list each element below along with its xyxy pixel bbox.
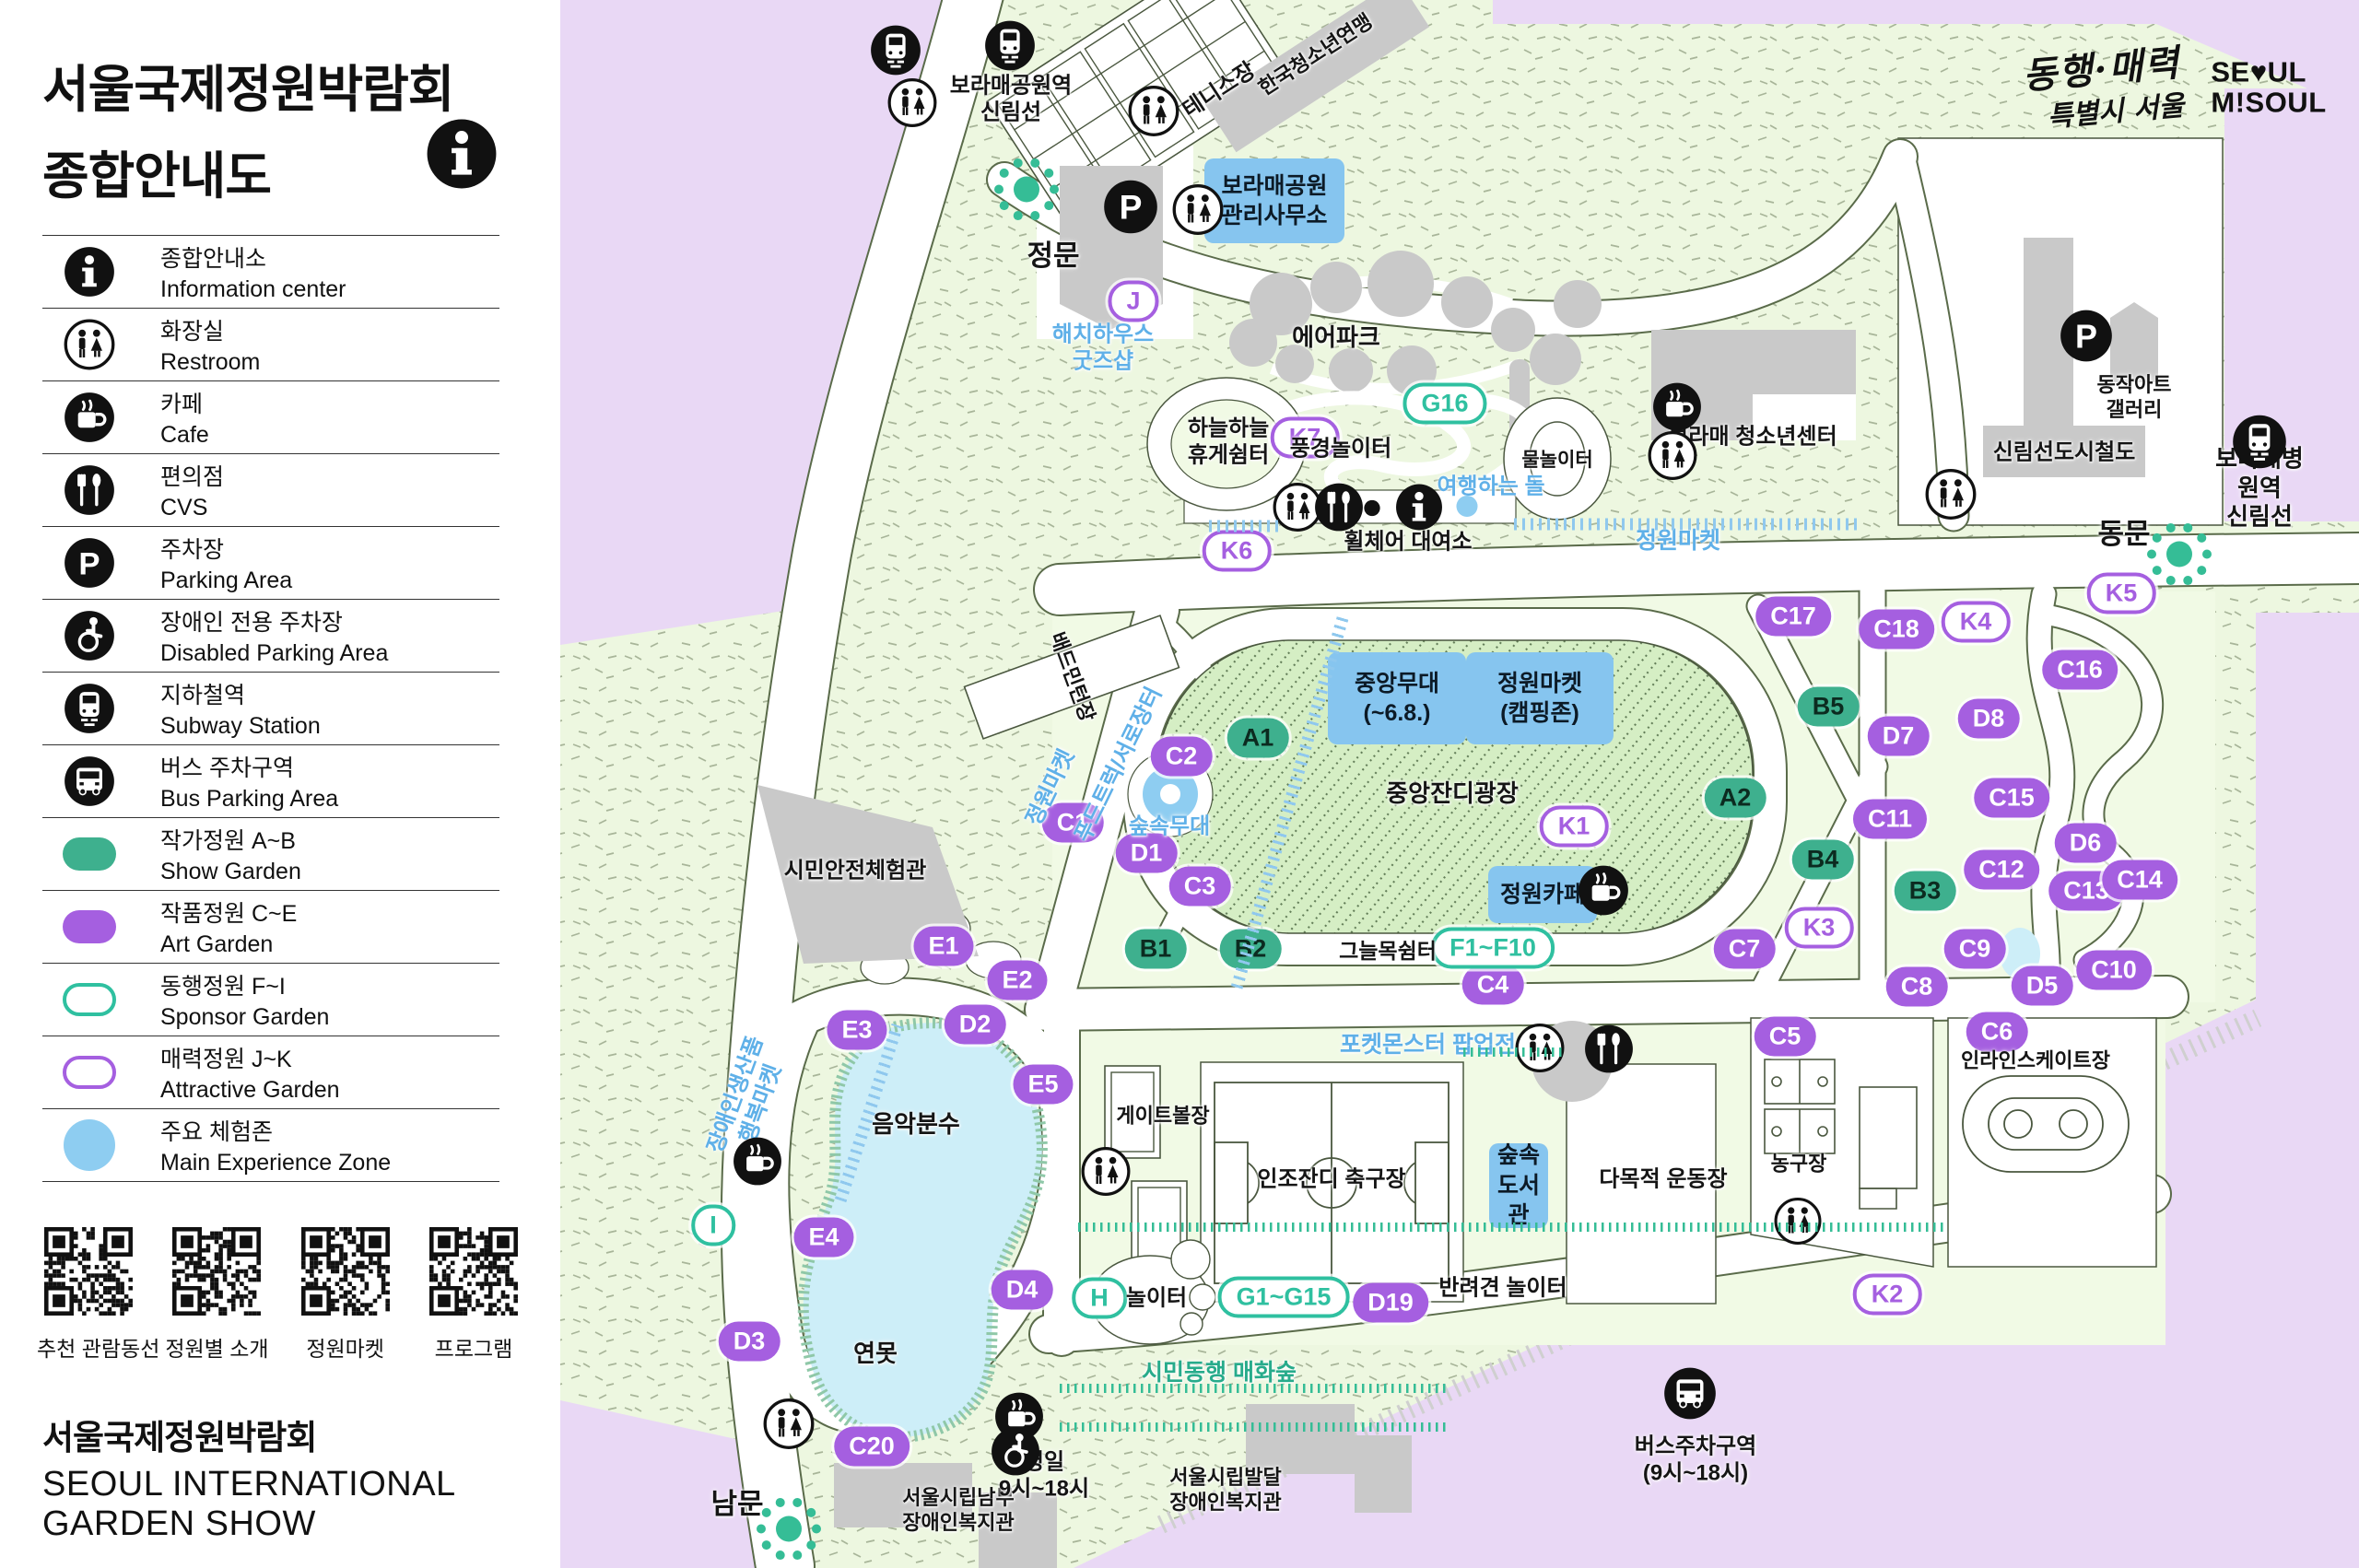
legend-ko: 작품정원 C~E	[160, 895, 297, 929]
poster-title-line1: 서울국제정원박람회	[42, 48, 522, 122]
teal-dash-strip	[1060, 1384, 1447, 1393]
badge-C8: C8	[1886, 967, 1948, 1007]
restroom-icon	[63, 318, 116, 371]
map-label: 한국청소년연맹	[1254, 9, 1377, 101]
blue-dash-strip	[1209, 521, 1283, 532]
map-label: 서울시립남부 장애인복지관	[902, 1486, 1014, 1536]
badge-G16: G16	[1402, 383, 1486, 425]
legend-ko: 주요 체험존	[160, 1114, 391, 1147]
map-label: 해치하우스 굿즈샵	[1052, 322, 1154, 376]
badge-C9: C9	[1944, 930, 2006, 969]
badge-K6: K6	[1203, 531, 1272, 572]
map-label: 연못	[853, 1340, 898, 1369]
map-label: 에어파크	[1292, 323, 1380, 353]
legend-ko: 장애인 전용 주차장	[160, 604, 388, 638]
legend-en: Main Experience Zone	[160, 1150, 391, 1176]
facility-box: 중앙무대 (~6.8.)	[1328, 652, 1466, 744]
footer-logo: 서울국제정원박람회 SEOUL INTERNATIONAL GARDEN SHO…	[42, 1410, 456, 1544]
dot-blue-icon	[1456, 496, 1478, 522]
badge-B3: B3	[1895, 872, 1956, 911]
blue-dash-strip	[1231, 614, 1349, 989]
facility-box: 숲속 도서관	[1489, 1143, 1548, 1228]
legend-ko: 지하철역	[160, 677, 321, 710]
map-label: 풍경놀이터	[1290, 435, 1391, 462]
legend-en: Art Garden	[160, 931, 297, 958]
badge-C7: C7	[1714, 930, 1776, 969]
map-label: 놀이터	[1126, 1284, 1187, 1311]
legend-ko: 작가정원 A~B	[160, 823, 301, 856]
badge-K1: K1	[1540, 806, 1609, 848]
map-label: 그늘목쉼터	[1339, 938, 1437, 964]
badge-E3: E3	[827, 1011, 886, 1050]
pill-purple-outline-icon	[63, 1046, 116, 1099]
legend-row-cafe: 카페 Cafe	[42, 380, 499, 453]
svg-text:P: P	[2075, 317, 2097, 355]
legend-row-bus: 버스 주차구역 Bus Parking Area	[42, 744, 499, 817]
legend-row-pill-purple: 작품정원 C~E Art Garden	[42, 890, 499, 963]
map-label: 반려견 놀이터	[1438, 1274, 1567, 1301]
seoul-my-soul-logo: SE♥UL M!SOUL	[2211, 57, 2326, 117]
cvs-icon	[1584, 1024, 1634, 1079]
gate-marker-3	[754, 1494, 824, 1568]
sidebar: 서울국제정원박람회 종합안내도 종합안내소 Information center…	[0, 0, 560, 1568]
qr-label: 정원별 소개	[165, 1331, 268, 1363]
badge-D3: D3	[719, 1322, 780, 1362]
legend-row-circle-blue: 주요 체험존 Main Experience Zone	[42, 1108, 499, 1182]
badge-J: J	[1108, 281, 1158, 322]
map-label: 동작아트 갤러리	[2097, 373, 2172, 423]
map-label: 서울시립발달 장애인복지관	[1169, 1466, 1281, 1515]
badge-C11: C11	[1853, 800, 1927, 839]
legend-en: Cafe	[160, 422, 209, 449]
legend-row-pill-teal-outline: 동행정원 F~I Sponsor Garden	[42, 963, 499, 1036]
teal-dash-strip	[1463, 1047, 1567, 1057]
badge-E4: E4	[793, 1218, 853, 1258]
badge-B4: B4	[1792, 840, 1854, 880]
restroom-icon	[887, 78, 937, 133]
badge-K2: K2	[1853, 1274, 1922, 1316]
qr-3: 정원마켓	[294, 1227, 397, 1363]
map-label: 보라매공원역 신림선	[950, 73, 1072, 127]
map-label: 신림선도시철도	[1993, 439, 2136, 465]
cvs-icon	[63, 463, 116, 517]
pill-teal-outline-icon	[63, 973, 116, 1026]
map-label: 물놀이터	[1521, 449, 1592, 473]
legend-ko: 버스 주차구역	[160, 750, 338, 783]
badge-C4: C4	[1462, 965, 1524, 1005]
gate-marker-2	[2144, 520, 2214, 594]
blue-dash-strip	[1514, 519, 1857, 531]
pill-teal-icon	[63, 827, 116, 881]
soul-line2: M!SOUL	[2211, 88, 2326, 118]
legend-en: Sponsor Garden	[160, 1004, 329, 1031]
map-label: 다목적 운동장	[1599, 1165, 1727, 1192]
map-label: 인라인스케이트장	[1961, 1049, 2110, 1074]
facility-box: 보라매공원 관리사무소	[1204, 158, 1344, 243]
badge-G1~G15: G1~G15	[1218, 1277, 1350, 1318]
map-label: 시민안전체험관	[784, 857, 927, 883]
badge-D4: D4	[992, 1270, 1053, 1310]
badge-C18: C18	[1859, 610, 1934, 649]
badge-A2: A2	[1705, 778, 1766, 818]
svg-text:P: P	[1120, 188, 1143, 227]
legend-en: Show Garden	[160, 859, 301, 885]
cafe-icon	[1652, 382, 1702, 437]
map-label: 버스주차구역 (9시~18시)	[1635, 1433, 1756, 1488]
map-label: 시민동행 매화숲	[1142, 1359, 1297, 1387]
parking-icon: P	[63, 536, 116, 590]
restroom-icon	[1648, 431, 1697, 486]
seoul-brand-calligraphy: 동행·매력 특별시 서울	[2020, 33, 2185, 137]
gate-marker-1	[992, 155, 1062, 229]
subway-icon	[984, 20, 1036, 76]
badge-B5: B5	[1798, 687, 1860, 727]
legend-en: Disabled Parking Area	[160, 640, 388, 667]
legend-ko: 매력정원 J~K	[160, 1041, 340, 1074]
legend-en: Parking Area	[160, 568, 292, 594]
dot-black-icon	[1364, 500, 1380, 521]
teal-dash-strip	[1060, 1422, 1447, 1432]
badge-C17: C17	[1755, 597, 1831, 637]
badge-C2: C2	[1151, 737, 1213, 777]
legend-row-info: 종합안내소 Information center	[42, 235, 499, 308]
cvs-icon	[1314, 483, 1364, 537]
pill-purple-icon	[63, 900, 116, 954]
legend-row-subway: 지하철역 Subway Station	[42, 672, 499, 744]
legend-ko: 화장실	[160, 313, 260, 346]
map-label: 음악분수	[872, 1110, 960, 1140]
facility-box: 정원마켓 (캠핑존)	[1466, 652, 1614, 744]
legend-row-parking: P 주차장 Parking Area	[42, 526, 499, 599]
legend-row-pill-purple-outline: 매력정원 J~K Attractive Garden	[42, 1036, 499, 1108]
cafe-icon	[1578, 865, 1629, 921]
footer-english-1: SEOUL INTERNATIONAL	[42, 1465, 456, 1504]
footer-english-2: GARDEN SHOW	[42, 1504, 456, 1544]
map-label: 농구장	[1771, 1153, 1827, 1177]
footer-korean: 서울국제정원박람회	[42, 1410, 456, 1459]
cafe-icon	[63, 391, 116, 444]
parking-icon: P	[1103, 180, 1158, 240]
qr-code-row: 추천 관람동선정원별 소개정원마켓프로그램	[37, 1227, 525, 1363]
info-icon	[63, 245, 116, 298]
qr-label: 프로그램	[422, 1331, 525, 1363]
badge-B1: B1	[1125, 930, 1187, 969]
legend-row-pill-teal: 작가정원 A~B Show Garden	[42, 817, 499, 890]
legend-row-disabled: 장애인 전용 주차장 Disabled Parking Area	[42, 599, 499, 672]
map-label: 인조잔디 축구장	[1257, 1165, 1405, 1192]
legend-row-cvs: 편의점 CVS	[42, 453, 499, 526]
soul-line1: SE♥UL	[2211, 57, 2326, 88]
map-label: 동문	[2097, 517, 2150, 552]
info-icon	[1395, 484, 1443, 536]
bus-icon	[1663, 1367, 1717, 1425]
subway-icon	[870, 25, 921, 81]
restroom-icon	[1925, 469, 1977, 525]
svg-text:P: P	[78, 546, 100, 581]
disabled-icon	[991, 1427, 1040, 1481]
badge-E5: E5	[1013, 1065, 1073, 1105]
map-label: 하늘하늘 휴게쉼터	[1188, 415, 1269, 470]
disabled-icon	[63, 609, 116, 662]
legend-en: Subway Station	[160, 713, 321, 740]
map-label: 정원마켓	[1636, 527, 1720, 556]
legend-ko: 동행정원 F~I	[160, 968, 329, 1001]
badge-D7: D7	[1868, 717, 1930, 756]
restroom-icon	[1128, 86, 1179, 142]
qr-2: 정원별 소개	[165, 1227, 268, 1363]
garden-show-map-poster: 서울국제정원박람회 종합안내도 종합안내소 Information center…	[0, 0, 2359, 1568]
map-label: 배드민턴장	[1044, 629, 1099, 725]
qr-1: 추천 관람동선	[37, 1227, 140, 1363]
badge-C5: C5	[1755, 1017, 1816, 1057]
badge-I: I	[691, 1205, 735, 1246]
legend-en: Information center	[160, 276, 346, 303]
info-icon	[426, 118, 498, 190]
badge-E1: E1	[913, 927, 973, 966]
legend: 종합안내소 Information center 화장실 Restroom 카페…	[42, 235, 499, 1182]
subway-icon	[2232, 415, 2287, 474]
qr-label: 추천 관람동선	[37, 1331, 140, 1363]
legend-ko: 카페	[160, 386, 209, 419]
teal-dash-strip	[1078, 1223, 1944, 1232]
qr-label: 정원마켓	[294, 1331, 397, 1363]
bus-icon	[63, 755, 116, 808]
legend-en: CVS	[160, 495, 224, 521]
badge-D8: D8	[1958, 699, 2020, 739]
badge-D2: D2	[945, 1005, 1006, 1045]
restroom-icon	[1172, 184, 1224, 240]
badge-C15: C15	[1974, 778, 2049, 818]
badge-F1~F10: F1~F10	[1431, 928, 1555, 969]
legend-row-restroom: 화장실 Restroom	[42, 308, 499, 380]
badge-D6: D6	[2055, 824, 2117, 863]
badge-C20: C20	[834, 1427, 910, 1467]
badge-E2: E2	[987, 961, 1047, 1000]
legend-en: Attractive Garden	[160, 1077, 340, 1104]
badge-K4: K4	[1942, 602, 2011, 643]
legend-en: Restroom	[160, 349, 260, 376]
badge-H: H	[1072, 1278, 1127, 1319]
badge-D5: D5	[2012, 966, 2073, 1006]
legend-ko: 주차장	[160, 532, 292, 565]
qr-4: 프로그램	[422, 1227, 525, 1363]
map-label: 테니스장	[1178, 57, 1261, 124]
parking-icon: P	[2060, 310, 2113, 368]
map-label: 중앙잔디광장	[1386, 779, 1519, 809]
badge-C10: C10	[2076, 951, 2152, 990]
map-label: 숲속무대	[1129, 813, 1210, 839]
restroom-icon	[763, 1398, 815, 1455]
legend-en: Bus Parking Area	[160, 786, 338, 813]
badge-C16: C16	[2042, 650, 2118, 690]
badge-C6: C6	[1966, 1012, 2028, 1052]
circle-blue-icon	[63, 1118, 116, 1172]
map-label: 게이트볼장	[1116, 1105, 1209, 1129]
badge-D19: D19	[1353, 1283, 1428, 1323]
badge-K3: K3	[1785, 907, 1854, 949]
map-label: 정문	[1027, 239, 1079, 274]
legend-ko: 종합안내소	[160, 240, 346, 274]
badge-C14: C14	[2102, 860, 2177, 900]
badge-C12: C12	[1964, 850, 2039, 890]
badge-A1: A1	[1227, 719, 1289, 758]
cafe-icon	[733, 1137, 782, 1191]
restroom-icon	[1081, 1147, 1131, 1201]
map-label: 여행하는 돌	[1437, 473, 1544, 499]
legend-ko: 편의점	[160, 459, 224, 492]
subway-icon	[63, 682, 116, 735]
badge-C3: C3	[1169, 867, 1231, 907]
